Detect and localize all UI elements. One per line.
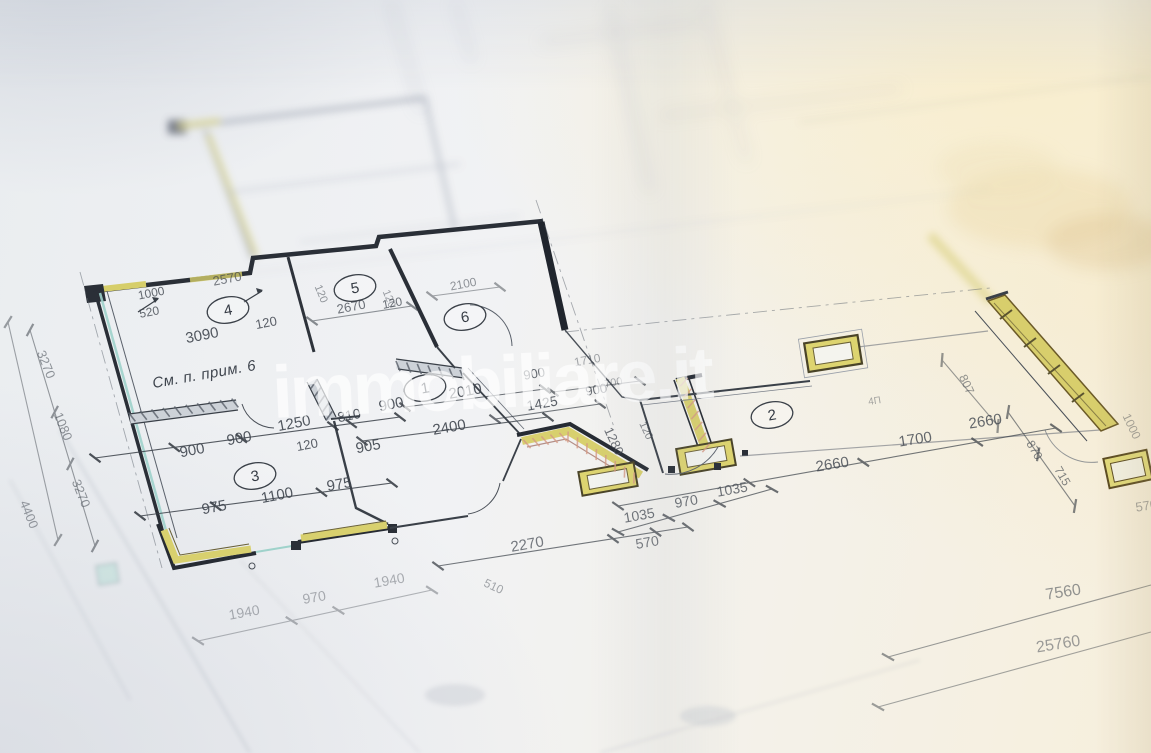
dimension-label: 905	[354, 436, 382, 457]
dimension-label: 120	[295, 435, 319, 454]
dimension-label: 1080	[51, 410, 76, 442]
dimension-label: 3090	[184, 324, 220, 347]
dimension-label: 975	[200, 497, 228, 518]
dimension-label: 970	[301, 587, 327, 607]
room-number-badge: 1	[402, 372, 448, 405]
dimension-label: 1000	[1120, 411, 1144, 441]
dimension-label: 510	[482, 576, 506, 597]
dimension-label: 900	[522, 364, 546, 383]
dimension-chain	[882, 585, 1151, 660]
plan-note: См. п. прим. 6	[151, 357, 257, 392]
dimension-label: 1940	[372, 569, 406, 590]
dimension-label: 570	[1134, 496, 1151, 514]
dimension-label: 570	[634, 532, 660, 552]
dimension-label: 807	[956, 372, 977, 396]
dimension-label: 975	[325, 474, 353, 495]
dimension-label: 900	[225, 428, 253, 449]
dimension-label: 1940	[227, 601, 261, 622]
dimension-label: 120	[312, 283, 330, 305]
dimension-label: 700	[603, 376, 623, 391]
dimension-label: 870	[1023, 438, 1045, 463]
dimension-label: 1700	[897, 429, 933, 451]
floor-plan-drawing: 2570100052030901202670120210012012090090…	[0, 0, 1151, 753]
dimension-label: 715	[1051, 464, 1073, 489]
dimension-label: 2270	[509, 533, 545, 556]
dimension-label: 2570	[212, 268, 243, 288]
dimension-label: 970	[673, 491, 699, 511]
dimension-label: 2010	[447, 380, 483, 403]
dimension-label: 1100	[260, 484, 295, 507]
dimension-chain	[872, 632, 1151, 710]
dimension-label: 1710	[573, 351, 602, 369]
room-number-badge: 2	[749, 399, 795, 432]
blurred-far-background	[390, 0, 1151, 270]
dimension-label: 900	[377, 394, 405, 415]
room-number-badge: 5	[332, 272, 378, 305]
dimension-label: 7560	[1044, 581, 1082, 603]
room-number-badge: 4	[205, 294, 251, 327]
blueprint-photo: 2570100052030901202670120210012012090090…	[0, 0, 1151, 753]
dimension-label: 4П	[867, 395, 881, 408]
dimension-label: 520	[138, 303, 161, 321]
wall-layer	[84, 221, 1151, 569]
dimension-label: 900	[178, 440, 206, 461]
dimension-layer	[4, 283, 1151, 711]
dimension-label: 2400	[431, 416, 467, 439]
dimension-chain	[1007, 405, 1076, 513]
dimension-label: 4400	[17, 498, 42, 530]
dimension-label: 120	[254, 313, 278, 332]
dimension-label: 2660	[814, 454, 850, 476]
label-layer: 2570100052030901202670120210012012090090…	[17, 268, 1151, 656]
dimension-label: 3270	[34, 348, 59, 380]
dimension-label: 1250	[276, 412, 312, 435]
room-number-badge: 6	[442, 301, 488, 334]
